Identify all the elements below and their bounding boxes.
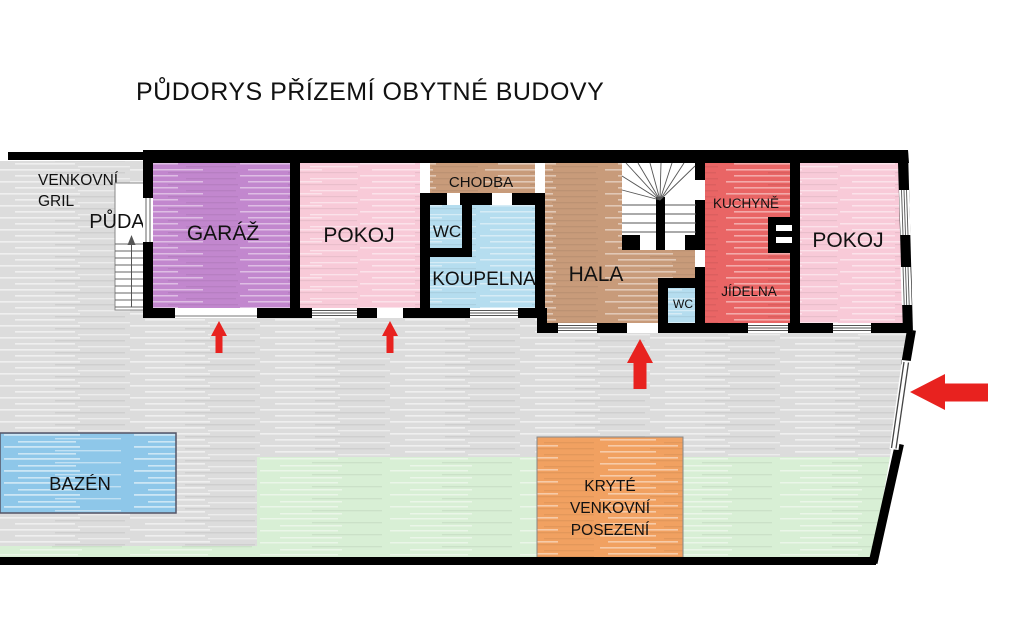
hall-label: HALA [569,263,624,286]
attic-label: PŮDA [89,209,145,233]
property-top-border [8,152,145,160]
bedroom-right-label: POKOJ [812,229,883,252]
window-dining [748,323,788,333]
corridor-label: CHODBA [449,174,513,191]
property-bottom-border [0,557,876,565]
window-bathroom [470,308,518,318]
chimney-flue-slot [776,225,792,231]
pool-label: BAZÉN [49,473,111,494]
wc-label: WC [433,222,461,241]
svg-text:GRIL: GRIL [38,193,75,210]
wc-hall-label: WC [673,297,693,311]
window-bedroom-right-east-2 [901,267,912,305]
svg-text:KRYTÉ: KRYTÉ [584,478,635,495]
chimney-flue-slot [776,237,792,243]
window-bedroom-right-south [833,323,871,333]
svg-text:POSEZENÍ: POSEZENÍ [571,522,650,539]
svg-text:VENKOVNÍ: VENKOVNÍ [570,500,651,517]
window-bedroom-right-east-1 [899,190,911,235]
window-hall [558,323,597,333]
floor-plan-page: PŮDORYS PŘÍZEMÍ OBYTNÉ BUDOVY BAZÉN KRYT… [0,0,1024,617]
door-corridor-hall [535,163,545,193]
door-bedroom-corridor [420,163,430,193]
floor-plan-drawing: PŮDORYS PŘÍZEMÍ OBYTNÉ BUDOVY BAZÉN KRYT… [0,0,1024,617]
bathroom-label: KOUPELNA [432,269,536,290]
kitchen-label: KUCHYNĚ [713,196,779,211]
bedroom-left-label: POKOJ [323,224,394,247]
garage-label: GARÁŽ [187,222,260,245]
door-garage-side [143,198,153,242]
svg-text:VENKOVNÍ: VENKOVNÍ [38,172,119,189]
covered-seating-area [537,437,683,559]
window-bedroom-left [312,308,357,318]
garage-gate-opening [175,308,257,318]
main-gate-arrow-icon [910,374,988,410]
page-title: PŮDORYS PŘÍZEMÍ OBYTNÉ BUDOVY [136,75,604,106]
door-bedroom-left-entrance [377,308,403,318]
dining-label: JÍDELNA [721,284,777,299]
door-hall-entrance [627,323,658,333]
chimney [768,217,800,253]
